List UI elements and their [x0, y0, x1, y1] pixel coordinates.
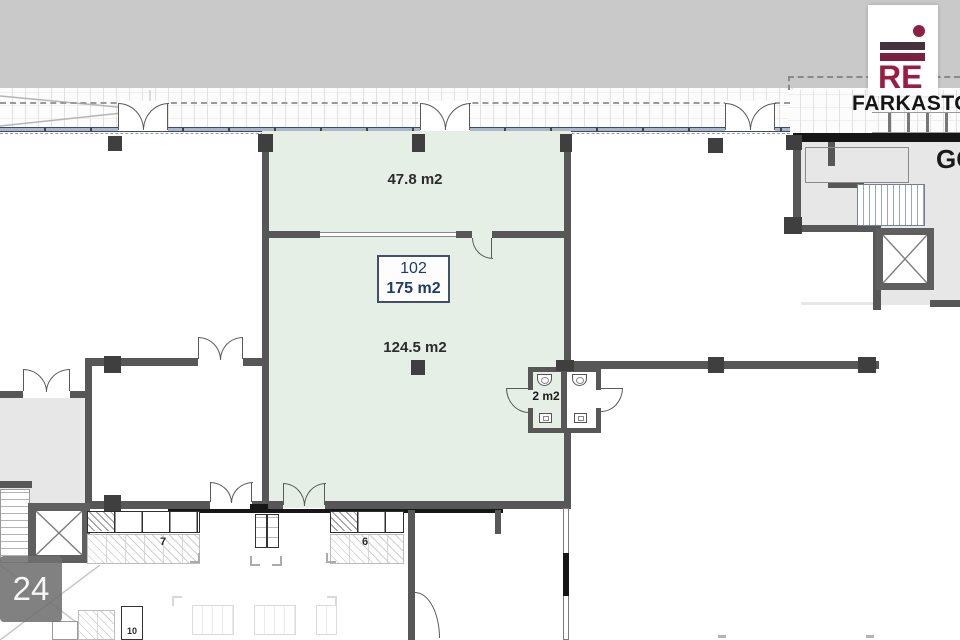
wall	[243, 358, 262, 366]
column	[560, 134, 572, 152]
door-leaf-arc	[220, 337, 243, 360]
column	[556, 360, 574, 371]
column	[708, 138, 723, 153]
door-leaf-arc	[118, 103, 144, 130]
door-leaf-arc	[23, 369, 47, 392]
wall	[563, 553, 569, 596]
logo-dot-icon	[913, 25, 925, 37]
wc-door-arc	[601, 388, 623, 412]
wall	[262, 231, 320, 238]
corner-bracket	[172, 596, 182, 606]
grid-tick	[718, 635, 726, 638]
sink-bowl	[576, 377, 584, 384]
wall	[564, 138, 571, 508]
wall	[930, 300, 960, 307]
unit-number: 102	[400, 259, 427, 279]
stair-railing	[805, 147, 909, 183]
furniture-label: 6	[352, 536, 378, 548]
column	[108, 136, 122, 151]
wall	[85, 358, 92, 509]
column	[708, 357, 724, 373]
furniture-label: 10	[118, 626, 146, 636]
unit-door	[283, 483, 325, 505]
door-leaf-arc	[420, 103, 446, 130]
logo-text: RE	[878, 59, 930, 96]
clipped-room-name: GO	[936, 144, 960, 175]
small-cabinet	[52, 621, 78, 640]
room-area-label: 124.5 m2	[340, 339, 490, 356]
wall	[596, 367, 601, 390]
counter-unit	[330, 511, 404, 533]
wall	[0, 481, 32, 488]
floor-white-patch	[801, 232, 873, 302]
column	[411, 360, 425, 375]
door-leaf-arc	[46, 369, 70, 392]
corner-bracket	[272, 556, 282, 566]
column	[858, 357, 876, 373]
wall	[456, 231, 472, 238]
table	[316, 605, 337, 635]
corner-bracket	[326, 553, 336, 563]
entrance-door	[420, 101, 470, 131]
page-number: 24	[13, 570, 50, 608]
wall	[325, 501, 571, 509]
corner-bracket	[250, 556, 260, 566]
door-leaf-arc	[445, 103, 471, 130]
door-leaf-arc	[210, 482, 232, 503]
counter-hatch	[331, 512, 357, 531]
door-leaf-arc	[725, 103, 751, 130]
toilet-tank	[578, 416, 584, 421]
glazed-partition	[320, 232, 456, 237]
table	[192, 605, 234, 635]
sink-bowl	[541, 377, 549, 384]
toilet-tank	[543, 416, 549, 421]
door-leaf-arc	[415, 592, 440, 638]
hatched-block	[78, 610, 115, 640]
unit-label-box[interactable]: 102 175 m2	[377, 255, 450, 303]
wc-door-leaf	[601, 388, 623, 389]
toilet-icon	[539, 413, 552, 423]
door-leaf-arc	[283, 483, 305, 506]
wall	[528, 367, 533, 390]
display-cabinet	[255, 514, 279, 548]
grid-tick	[866, 635, 874, 638]
room-door	[198, 337, 243, 359]
door-leaf-arc	[198, 337, 221, 360]
table	[254, 605, 296, 635]
entrance-door	[118, 101, 168, 131]
wall	[793, 133, 960, 142]
corner-bracket	[190, 553, 200, 563]
room-area-label: 47.8 m2	[340, 171, 490, 188]
door-leaf-arc	[143, 103, 169, 130]
elevator	[28, 503, 90, 563]
entrance-door	[725, 101, 775, 131]
door-leaf-arc	[304, 483, 326, 506]
wall	[492, 231, 571, 238]
wall	[250, 504, 268, 512]
wall	[70, 391, 85, 398]
wall	[495, 510, 501, 534]
agency-logo: RE	[868, 5, 938, 96]
cabinet-divider	[266, 515, 268, 547]
counter-hatch	[88, 512, 114, 531]
toilet-icon	[574, 413, 587, 423]
elevator-x-icon	[36, 511, 82, 555]
staircase	[857, 184, 925, 226]
watermark-text: FARKASTOM	[852, 92, 960, 116]
column	[784, 217, 802, 234]
shelving-unit	[87, 534, 200, 564]
counter-unit	[87, 511, 200, 533]
column	[258, 134, 273, 152]
door-leaf-arc	[231, 482, 253, 503]
wall	[262, 138, 269, 508]
wall	[408, 510, 415, 640]
wall-with-opening	[563, 508, 569, 640]
column	[104, 356, 121, 373]
furniture-label: 7	[148, 536, 178, 548]
column	[104, 495, 121, 511]
elevator	[876, 228, 934, 290]
page-number-badge[interactable]: 24	[0, 556, 62, 622]
wall	[793, 225, 878, 232]
left-edge-door	[23, 369, 70, 391]
door-leaf	[491, 238, 492, 258]
ghost-tables-group	[172, 596, 337, 640]
top-band	[0, 0, 960, 88]
door-leaf-arc	[750, 103, 776, 130]
unit-total-area: 175 m2	[386, 279, 440, 299]
column	[412, 134, 425, 152]
elevator-x-icon	[883, 235, 927, 283]
logo-bar-icon	[880, 42, 925, 50]
wall	[571, 361, 879, 369]
wall	[0, 391, 23, 398]
wall	[85, 358, 198, 366]
column	[786, 135, 802, 150]
room-door	[210, 482, 252, 502]
staircase	[0, 489, 30, 563]
floor-plan-page: 7 6 10 47.8 m2 124.5 m2 2 m2 102 175 m2 …	[0, 0, 960, 640]
wc-area-label: 2 m2	[524, 389, 568, 403]
